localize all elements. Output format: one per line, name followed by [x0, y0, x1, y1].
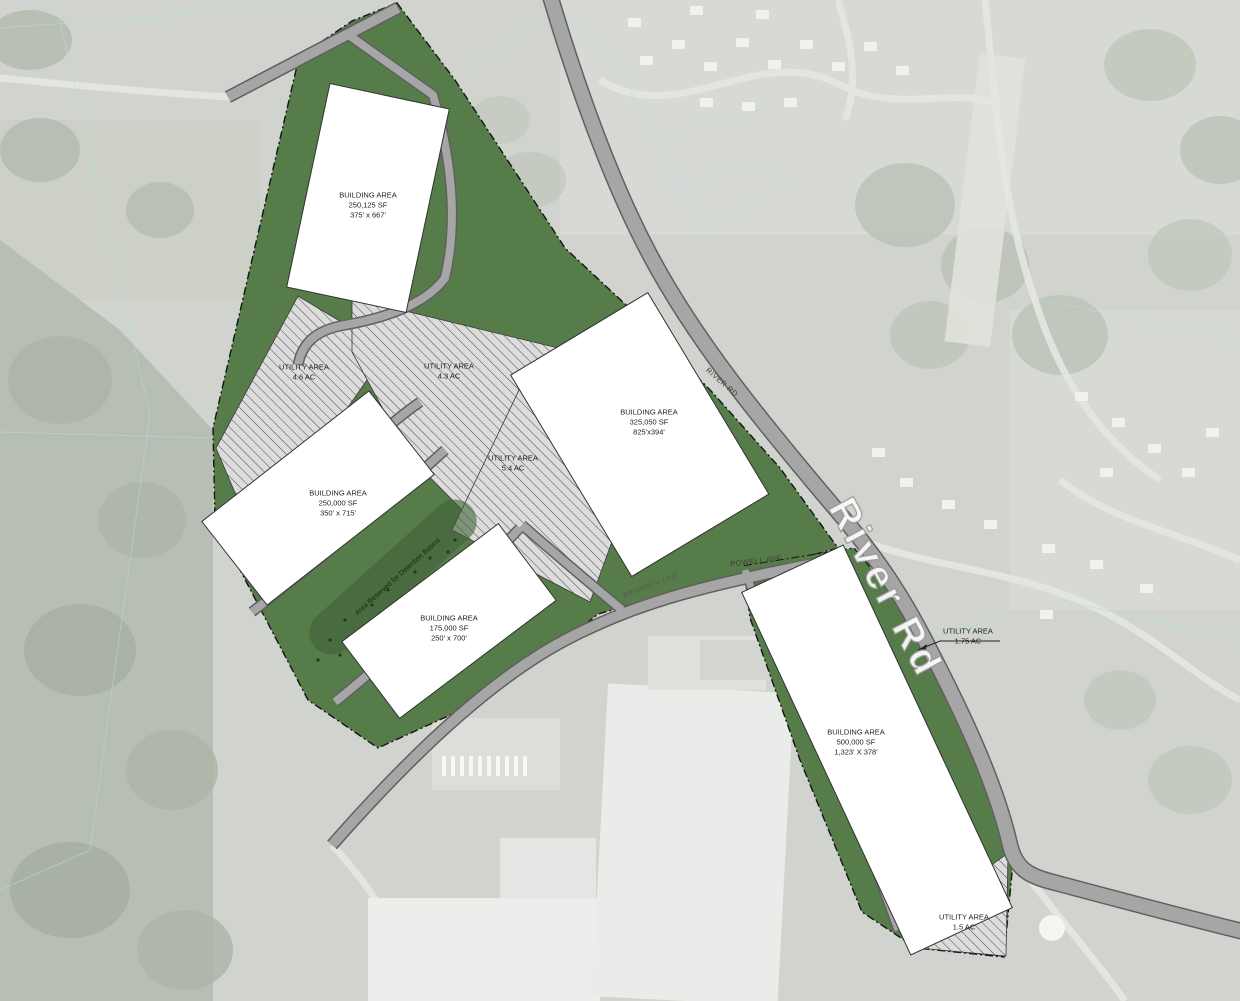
utility-area-4-label: UTILITY AREA 1.75 AC	[943, 626, 993, 646]
building-area-5-line2: 500,000 SF	[827, 737, 885, 747]
building-area-3-line2: 175,000 SF	[420, 623, 478, 633]
building-area-2-line1: BUILDING AREA	[309, 488, 367, 498]
utility-area-3-line1: UTILITY AREA	[488, 453, 538, 463]
site-plan-canvas: BUILDING AREA 250,125 SF 375' x 667' BUI…	[0, 0, 1240, 1001]
building-pads	[202, 84, 1012, 955]
utility-area-1-line2: 4.6 AC	[279, 372, 329, 382]
building-area-2-line2: 250,000 SF	[309, 498, 367, 508]
utility-area-4-line1: UTILITY AREA	[943, 626, 993, 636]
building-area-3-line3: 250' x 700'	[420, 633, 478, 643]
building-area-4-line3: 825'x394'	[620, 427, 678, 437]
site-plan-overlay	[0, 0, 1240, 1001]
building-area-3-line1: BUILDING AREA	[420, 613, 478, 623]
utility-area-5-line1: UTILITY AREA	[939, 912, 989, 922]
building-area-5-label: BUILDING AREA 500,000 SF 1,323' X 378'	[827, 727, 885, 756]
building-area-1-line1: BUILDING AREA	[339, 190, 397, 200]
utility-area-4-line2: 1.75 AC	[943, 636, 993, 646]
utility-area-2-line2: 4.3 AC	[424, 371, 474, 381]
utility-area-3-label: UTILITY AREA 5.4 AC	[488, 453, 538, 473]
utility-area-1-label: UTILITY AREA 4.6 AC	[279, 362, 329, 382]
building-area-2-label: BUILDING AREA 250,000 SF 350' x 715'	[309, 488, 367, 517]
building-area-5-line3: 1,323' X 378'	[827, 747, 885, 757]
building-area-1-line3: 375' x 667'	[339, 210, 397, 220]
utility-area-3-line2: 5.4 AC	[488, 463, 538, 473]
building-area-1-line2: 250,125 SF	[339, 200, 397, 210]
utility-area-1-line1: UTILITY AREA	[279, 362, 329, 372]
building-area-4-line1: BUILDING AREA	[620, 407, 678, 417]
utility-area-2-line1: UTILITY AREA	[424, 361, 474, 371]
building-area-4-label: BUILDING AREA 325,050 SF 825'x394'	[620, 407, 678, 436]
building-area-4-line2: 325,050 SF	[620, 417, 678, 427]
utility-area-2-label: UTILITY AREA 4.3 AC	[424, 361, 474, 381]
building-area-2-line3: 350' x 715'	[309, 508, 367, 518]
utility-area-5-line2: 1.5 AC	[939, 922, 989, 932]
building-area-5-line1: BUILDING AREA	[827, 727, 885, 737]
building-area-1-label: BUILDING AREA 250,125 SF 375' x 667'	[339, 190, 397, 219]
building-area-3-label: BUILDING AREA 175,000 SF 250' x 700'	[420, 613, 478, 642]
utility-area-5-label: UTILITY AREA 1.5 AC	[939, 912, 989, 932]
